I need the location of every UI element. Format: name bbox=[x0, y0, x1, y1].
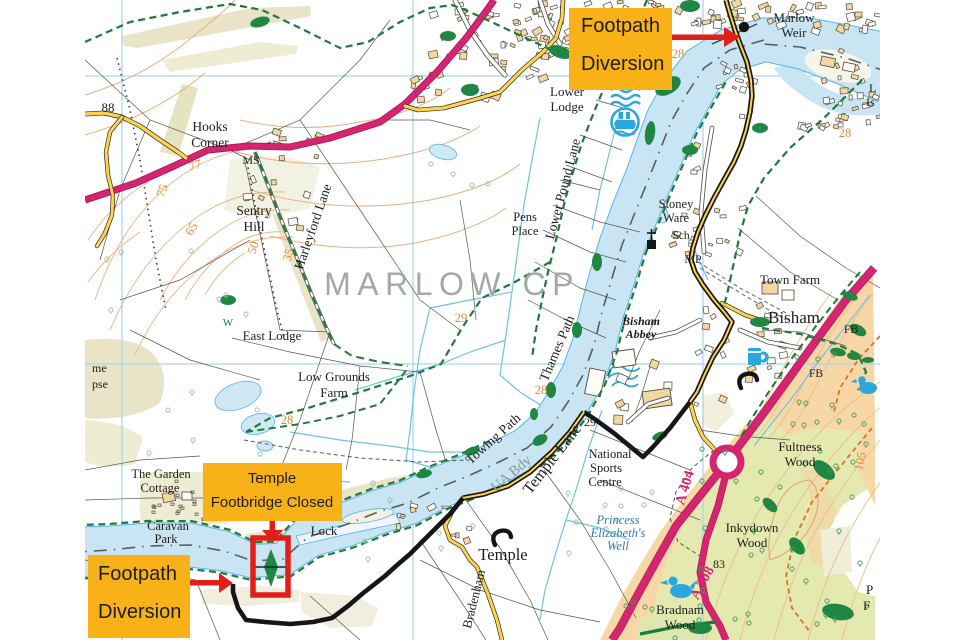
svg-text:MS: MS bbox=[242, 153, 259, 167]
svg-text:Cottage: Cottage bbox=[141, 481, 180, 495]
svg-text:Corner: Corner bbox=[191, 135, 229, 150]
svg-text:28: 28 bbox=[535, 383, 548, 397]
svg-text:28: 28 bbox=[281, 413, 294, 427]
svg-text:Bisham: Bisham bbox=[621, 314, 660, 328]
svg-text:Wood: Wood bbox=[737, 535, 768, 550]
svg-text:Footbridge Closed: Footbridge Closed bbox=[211, 494, 334, 511]
svg-text:Diversion: Diversion bbox=[98, 601, 181, 623]
svg-text:Park: Park bbox=[155, 532, 179, 546]
svg-text:Is: Is bbox=[866, 95, 875, 109]
svg-text:National: National bbox=[588, 447, 632, 461]
svg-text:me: me bbox=[92, 361, 107, 375]
svg-text:29: 29 bbox=[455, 311, 468, 325]
svg-text:Princess: Princess bbox=[595, 513, 639, 527]
svg-text:Stoney: Stoney bbox=[659, 197, 694, 211]
svg-text:28: 28 bbox=[839, 126, 852, 140]
svg-text:W: W bbox=[223, 317, 234, 329]
svg-text:Ware: Ware bbox=[663, 211, 690, 225]
svg-text:FB: FB bbox=[809, 368, 823, 380]
svg-text:Sentry: Sentry bbox=[236, 203, 271, 218]
svg-text:Temple: Temple bbox=[248, 470, 296, 487]
svg-text:Fultness: Fultness bbox=[778, 439, 821, 454]
svg-text:Bisham: Bisham bbox=[768, 308, 820, 327]
svg-text:Caravan: Caravan bbox=[147, 519, 189, 533]
svg-text:Wood: Wood bbox=[665, 617, 696, 632]
svg-text:East Lodge: East Lodge bbox=[243, 328, 302, 343]
svg-text:Pens: Pens bbox=[513, 210, 537, 224]
svg-text:Elizabeth's: Elizabeth's bbox=[590, 526, 646, 540]
svg-text:Diversion: Diversion bbox=[581, 53, 664, 75]
svg-text:Town Farm: Town Farm bbox=[760, 272, 820, 287]
svg-text:Hooks: Hooks bbox=[192, 119, 227, 134]
svg-text:Sch: Sch bbox=[672, 230, 690, 242]
svg-text:28: 28 bbox=[672, 47, 685, 61]
svg-text:Centre: Centre bbox=[588, 475, 622, 489]
svg-text:MP: MP bbox=[684, 252, 702, 266]
svg-text:Lock: Lock bbox=[311, 523, 338, 538]
svg-text:The Garden: The Garden bbox=[131, 467, 191, 481]
svg-text:MARLOW CP: MARLOW CP bbox=[324, 266, 580, 302]
svg-text:Bradnam: Bradnam bbox=[656, 602, 704, 617]
svg-text:Abbey: Abbey bbox=[625, 327, 657, 341]
svg-text:88: 88 bbox=[102, 100, 115, 115]
svg-text:P: P bbox=[866, 582, 873, 597]
svg-text:29: 29 bbox=[584, 415, 596, 429]
svg-text:Well: Well bbox=[607, 539, 629, 553]
svg-text:pse: pse bbox=[92, 377, 108, 391]
svg-text:F: F bbox=[863, 598, 870, 613]
svg-text:Inkydown: Inkydown bbox=[726, 520, 779, 535]
svg-text:Farm: Farm bbox=[320, 385, 347, 400]
svg-text:Lodge: Lodge bbox=[550, 99, 583, 114]
svg-text:Place: Place bbox=[511, 224, 539, 238]
svg-text:Wood: Wood bbox=[785, 454, 816, 469]
svg-text:83: 83 bbox=[713, 557, 725, 571]
svg-text:Sports: Sports bbox=[590, 461, 622, 475]
svg-text:Marlow: Marlow bbox=[773, 10, 815, 25]
svg-text:Hill: Hill bbox=[243, 219, 264, 234]
svg-text:Low Grounds: Low Grounds bbox=[298, 369, 370, 384]
svg-text:L: L bbox=[869, 81, 876, 95]
svg-text:FB: FB bbox=[844, 324, 858, 336]
svg-text:Footpath: Footpath bbox=[581, 15, 660, 37]
svg-text:Footpath: Footpath bbox=[98, 563, 177, 585]
svg-text:Temple: Temple bbox=[478, 545, 527, 564]
svg-text:Weir: Weir bbox=[782, 25, 808, 40]
